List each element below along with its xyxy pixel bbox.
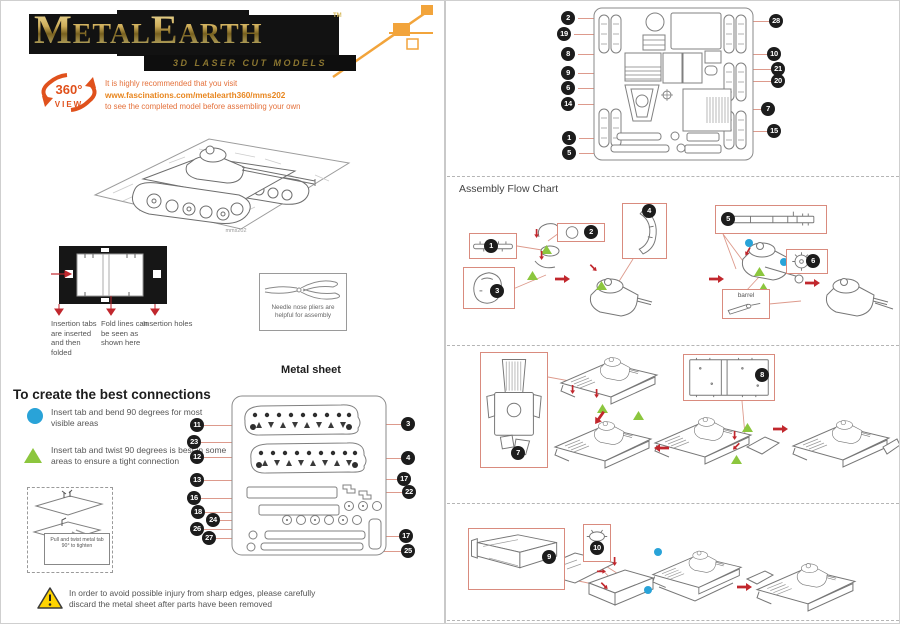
step-callout: 2 [584, 225, 598, 239]
part-callout: 9 [561, 66, 575, 80]
pliers-note: Needle nose pliers are helpful for assem… [260, 303, 346, 321]
barrel-label-box: barrel [722, 289, 770, 319]
part-callout: 2 [561, 11, 575, 25]
trademark-label: TM [333, 13, 342, 19]
metal-sheet-diagram [229, 393, 389, 559]
insertion-holes-label: Insertion holes [143, 319, 233, 329]
step-callout: 7 [511, 446, 525, 460]
part-callout: 27 [202, 531, 216, 545]
model-preview-illustration [79, 119, 364, 233]
model-code-caption: mms202 [196, 228, 276, 234]
step-callout: 8 [755, 368, 769, 382]
part-callout: 7 [761, 102, 775, 116]
360-view-badge: 360° VIEW [37, 71, 101, 115]
step-callout: 5 [721, 212, 735, 226]
warning-line2: discard the metal sheet after parts have… [69, 599, 429, 610]
part-callout: 17 [399, 529, 413, 543]
part-callout: 16 [187, 491, 201, 505]
column-divider [444, 1, 446, 624]
parts-sheet-diagram [591, 5, 756, 163]
step-box-3 [463, 267, 515, 309]
recommendation-url: www.fascinations.com/metalearth360/mms20… [105, 90, 355, 102]
connections-heading: To create the best connections [13, 387, 211, 402]
barrel-label: barrel [723, 290, 769, 299]
twist-demo-box: Pull and twist metal tab 90° to tighten [27, 487, 113, 573]
bend-marker-icon [27, 408, 43, 424]
part-callout: 28 [769, 14, 783, 28]
part-callout: 11 [190, 418, 204, 432]
insertion-tabs-label: Insertion tabs are inserted and then fol… [51, 319, 101, 357]
step-callout: 10 [590, 541, 604, 555]
pliers-tip-box: Needle nose pliers are helpful for assem… [259, 273, 347, 331]
part-callout: 19 [557, 27, 571, 41]
warning-icon [37, 586, 63, 610]
part-callout: 18 [191, 505, 205, 519]
step-callout: 6 [806, 254, 820, 268]
twist-marker-icon [24, 448, 42, 463]
step-callout: 4 [642, 204, 656, 218]
logo-subtitle: 3D LASER CUT MODELS [144, 55, 356, 71]
badge-360-text: 360° [56, 82, 83, 97]
part-callout: 1 [562, 131, 576, 145]
part-callout: 12 [190, 450, 204, 464]
part-callout: 20 [771, 74, 785, 88]
part-callout: 13 [190, 473, 204, 487]
recommendation-line3: to see the completed model before assemb… [105, 101, 355, 113]
insertion-guide-diagram [49, 244, 177, 316]
pliers-icon [261, 277, 345, 303]
recommendation-line1: It is highly recommended that you visit [105, 78, 355, 90]
part-callout: 23 [187, 435, 201, 449]
metal-sheet-title: Metal sheet [251, 364, 371, 376]
warning-line1: In order to avoid possible injury from s… [69, 588, 429, 599]
twist-note: Pull and twist metal tab 90° to tighten [44, 533, 110, 565]
part-callout: 14 [561, 97, 575, 111]
instruction-sheet-page: MetalEarth TM 3D LASER CUT MODELS 360° V… [0, 0, 900, 624]
step-callout: 3 [490, 284, 504, 298]
part-callout: 6 [561, 81, 575, 95]
part-callout: 25 [401, 544, 415, 558]
part-3-sketch [464, 268, 514, 308]
part-callout: 4 [401, 451, 415, 465]
part-callout: 17 [397, 472, 411, 486]
part-callout: 15 [767, 124, 781, 138]
badge-view-text: VIEW [55, 100, 83, 109]
brand-logo: MetalEarth [34, 6, 344, 54]
part-callout: 5 [562, 146, 576, 160]
fold-lines-label: Fold lines can be seen as shown here [101, 319, 149, 348]
barrel-sketch [723, 299, 769, 315]
part-callout: 24 [206, 513, 220, 527]
step-callout: 1 [484, 239, 498, 253]
step-callout: 9 [542, 550, 556, 564]
part-callout: 3 [401, 417, 415, 431]
part-callout: 8 [561, 47, 575, 61]
part-callout: 22 [402, 485, 416, 499]
part-callout: 10 [767, 47, 781, 61]
